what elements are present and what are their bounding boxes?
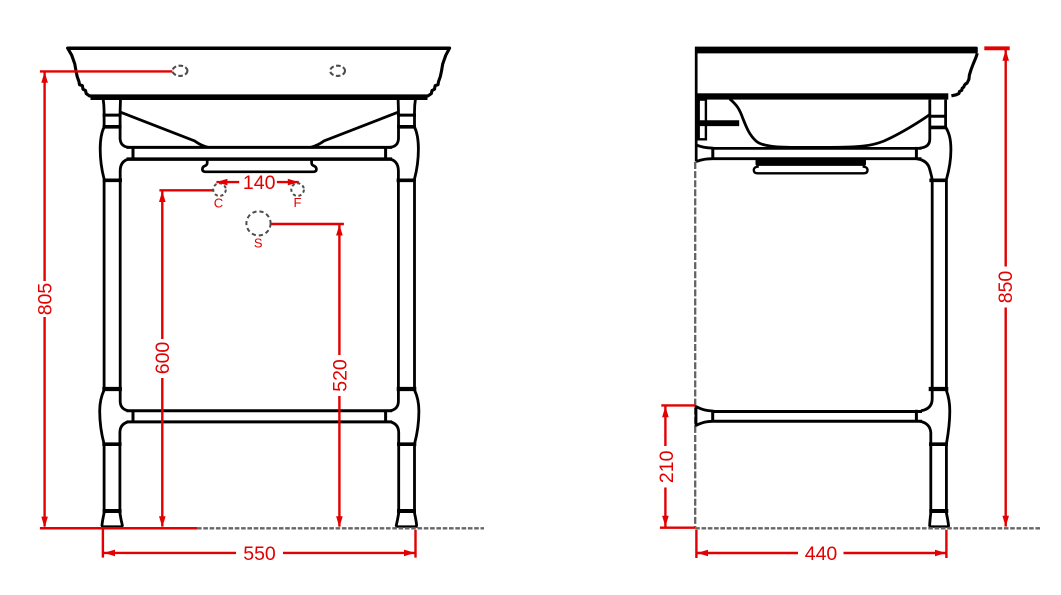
svg-text:S: S [254,236,263,251]
svg-text:440: 440 [805,543,838,565]
svg-text:850: 850 [995,271,1017,304]
svg-text:805: 805 [35,283,57,316]
svg-text:600: 600 [152,342,174,375]
svg-text:F: F [294,195,302,210]
svg-text:210: 210 [656,450,678,483]
svg-text:550: 550 [243,543,276,565]
svg-text:C: C [214,196,223,211]
svg-text:140: 140 [243,172,276,194]
svg-text:520: 520 [330,359,352,392]
